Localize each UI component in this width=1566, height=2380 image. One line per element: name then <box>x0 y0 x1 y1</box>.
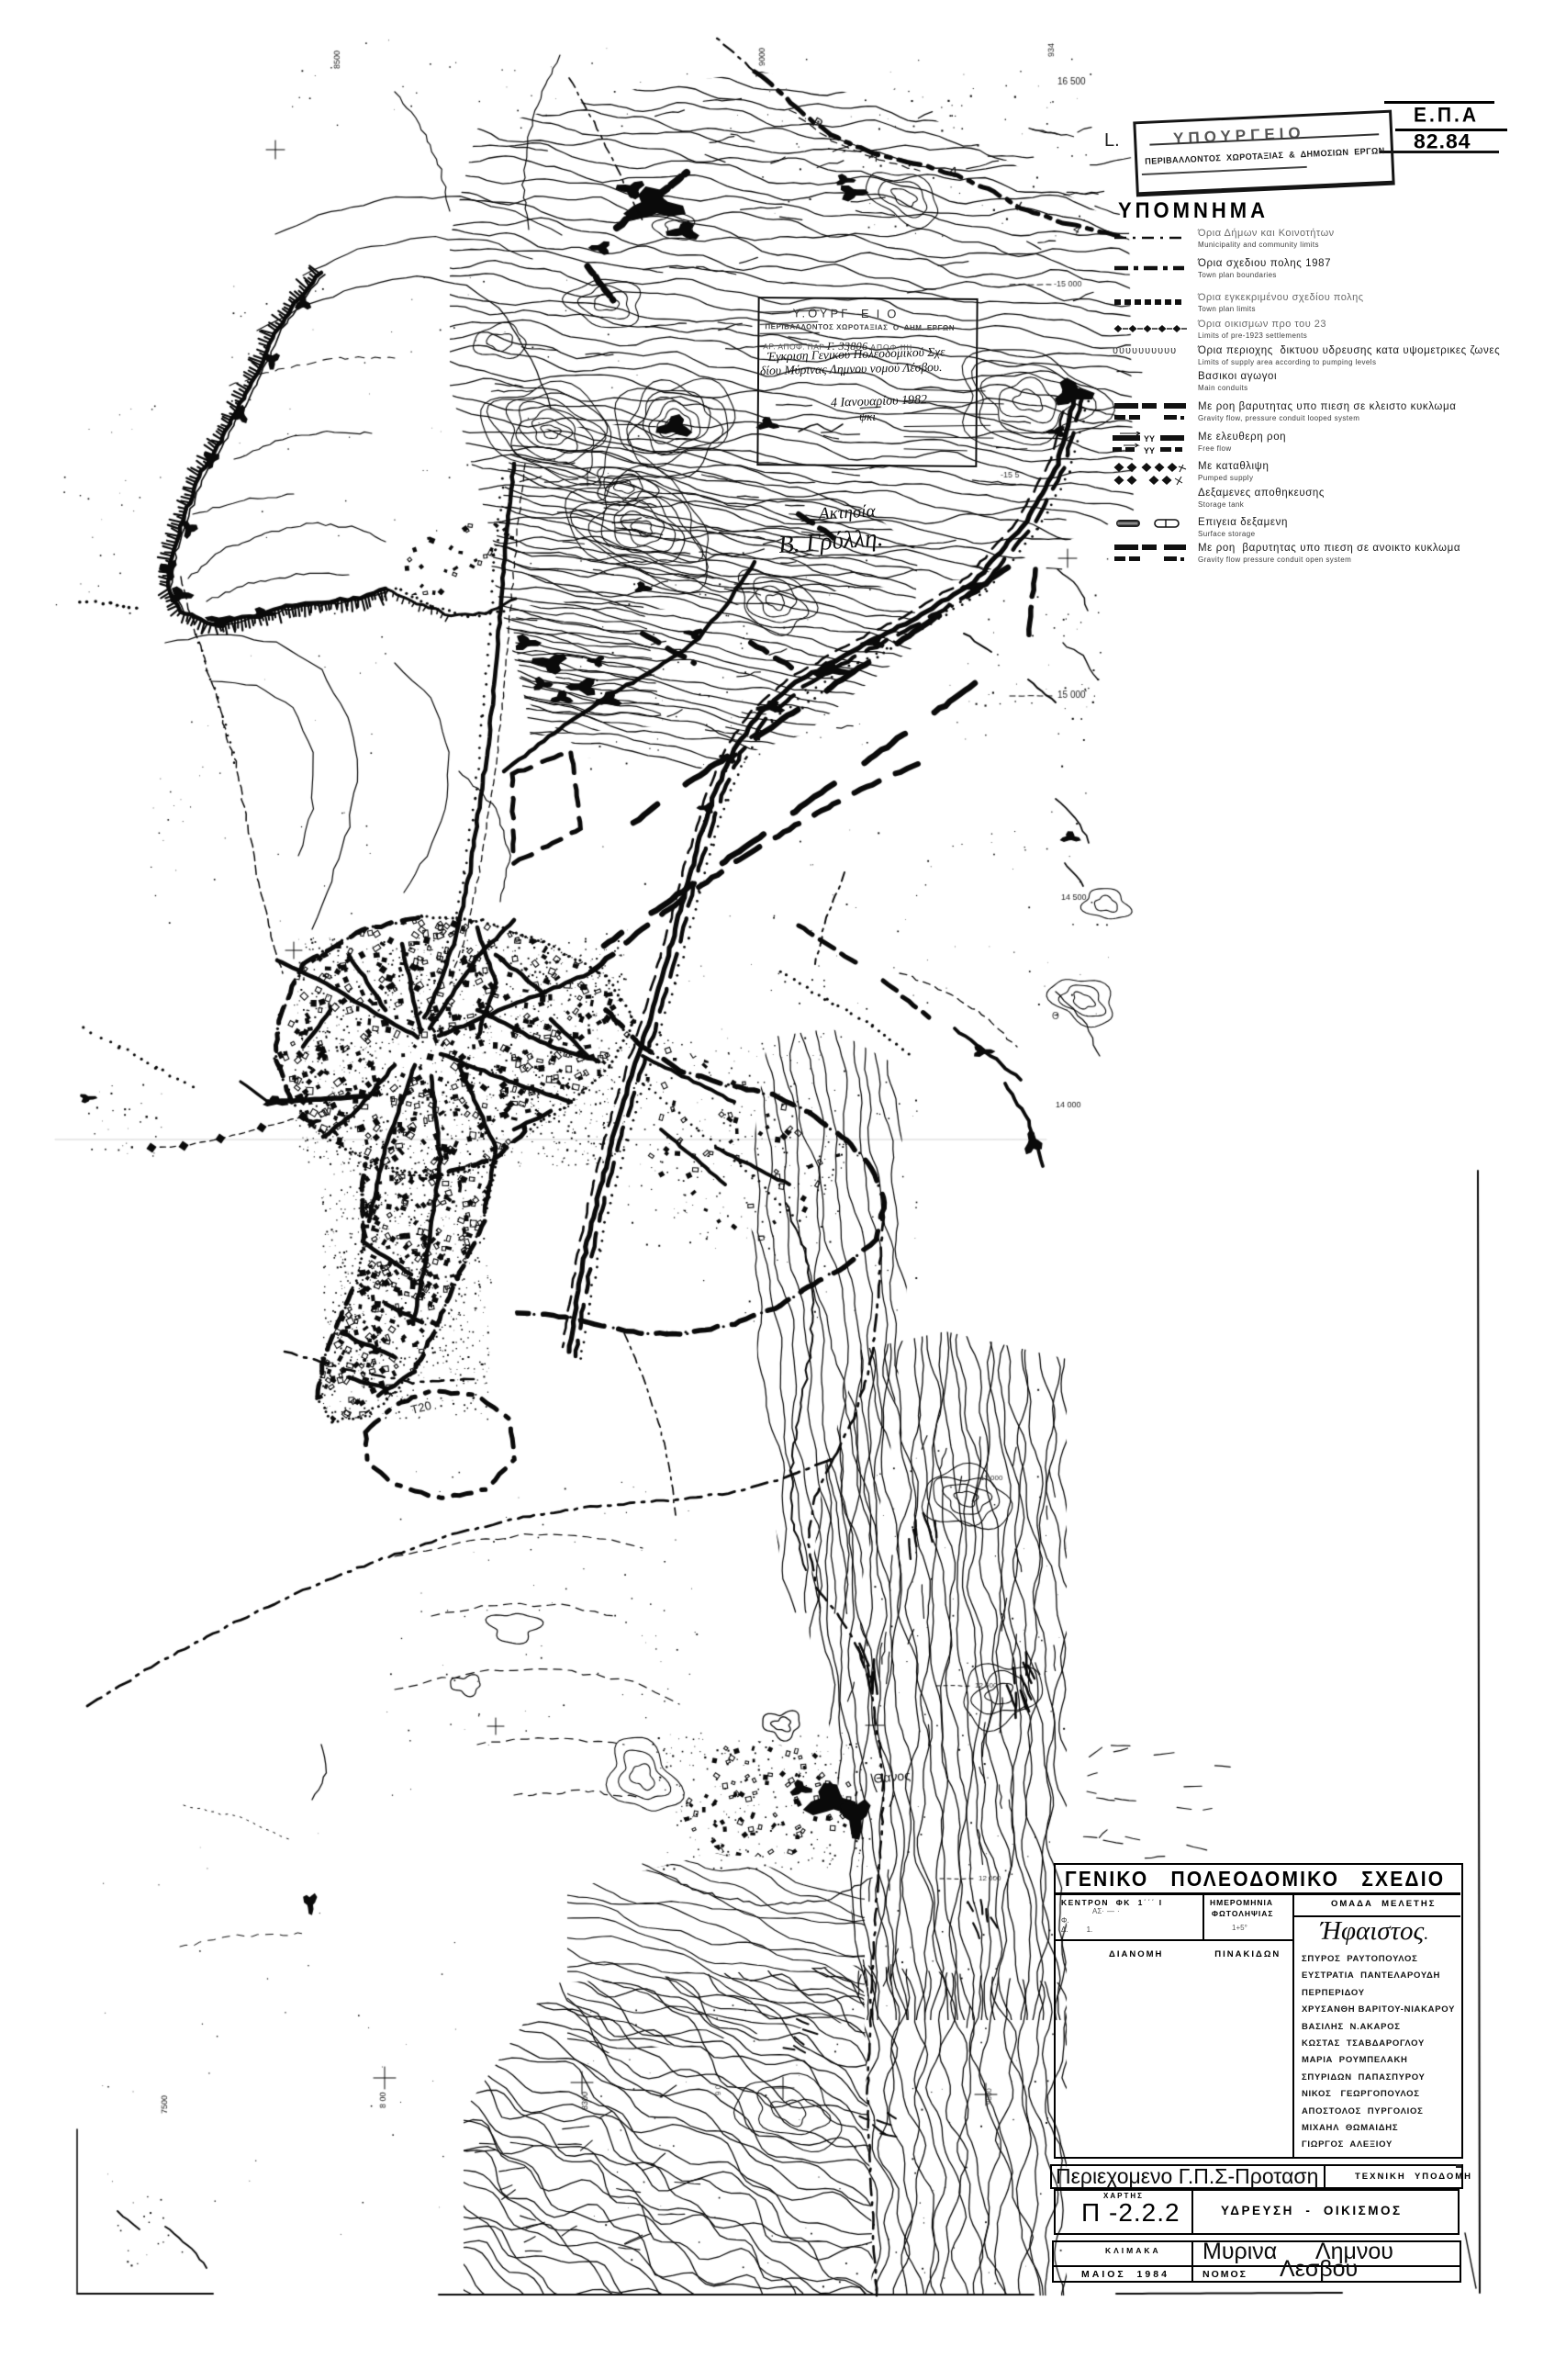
svg-text:YY: YY <box>1144 446 1155 455</box>
svg-text:YY: YY <box>1144 434 1155 443</box>
